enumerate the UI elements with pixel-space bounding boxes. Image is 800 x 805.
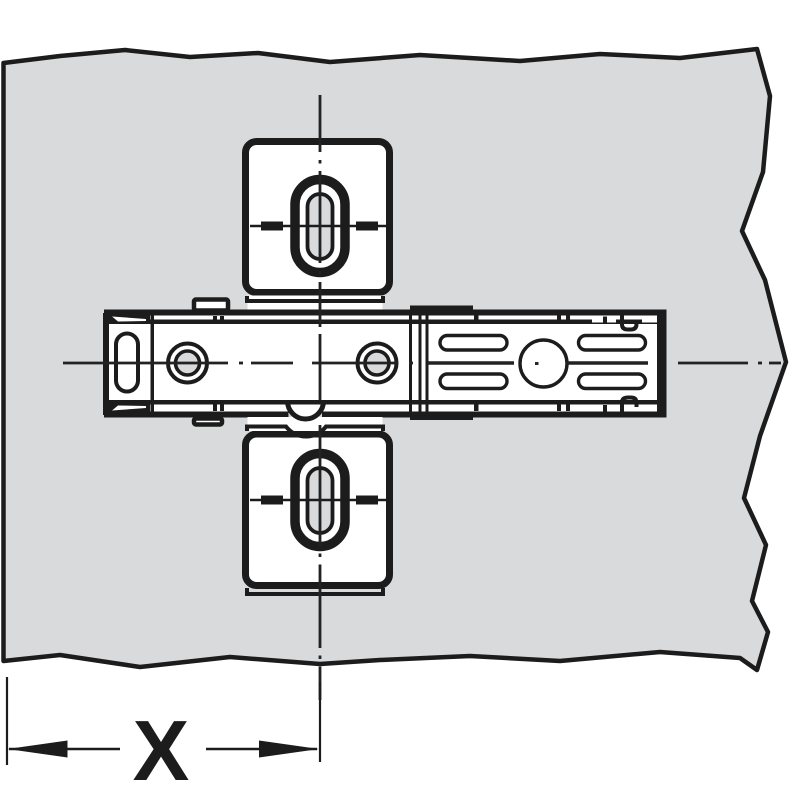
svg-text:X: X xyxy=(133,704,190,799)
